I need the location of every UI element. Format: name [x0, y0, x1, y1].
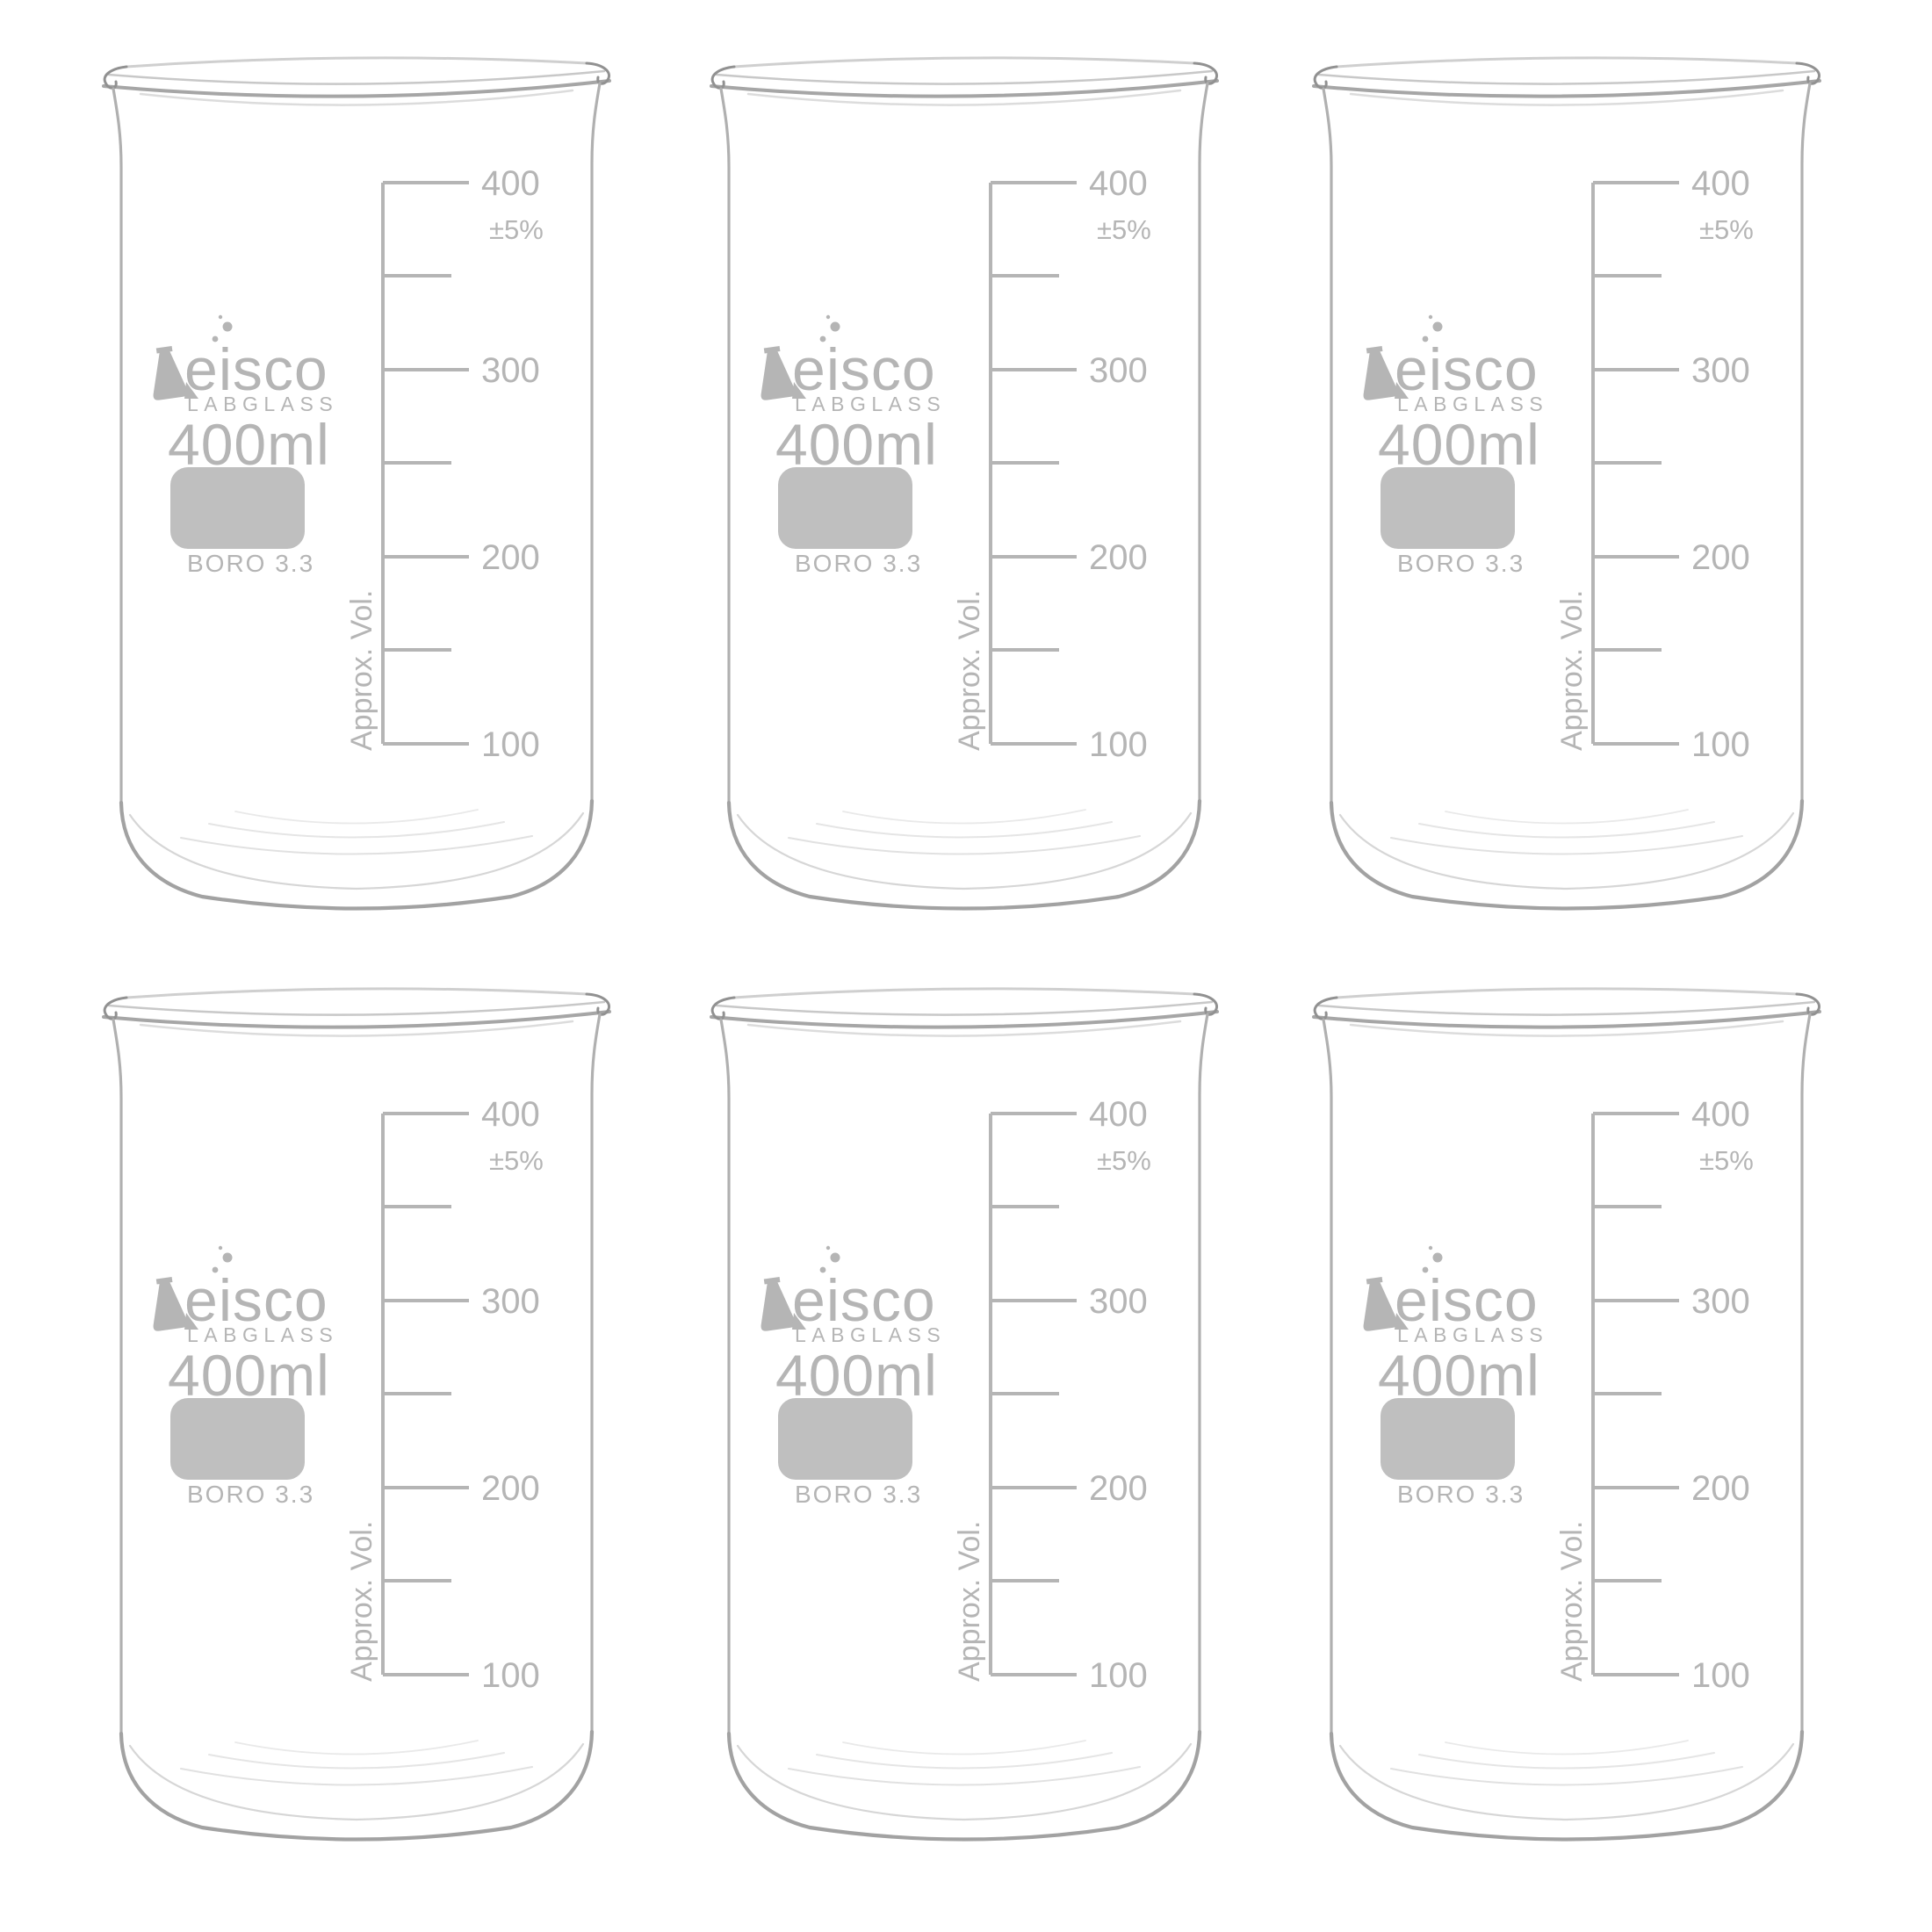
brand-logo: eisco LABGLASS: [147, 315, 338, 415]
printed-markings: eisco LABGLASS 400ml BORO 3.3 400 ±5% 30…: [754, 1095, 1151, 1695]
rim-lip-top: [717, 1002, 1212, 1015]
rim-lip-top: [109, 71, 604, 84]
brand-logo: eisco LABGLASS: [754, 1246, 946, 1346]
scale-value-100: 100: [481, 1656, 540, 1695]
scale-value-200: 200: [481, 538, 540, 577]
wall-left: [113, 1020, 121, 1734]
bubble-icon: [1429, 1246, 1432, 1250]
capacity-label: 400ml: [168, 412, 330, 477]
flask-icon: [147, 345, 188, 401]
base-ring-icon: [235, 810, 478, 824]
marking-area: [778, 1398, 912, 1480]
wall-right: [1802, 1014, 1810, 1732]
scale-value-400: 400: [481, 164, 540, 203]
base-ring-icon: [1419, 822, 1714, 838]
graduation-scale: [1593, 183, 1679, 744]
capacity-label: 400ml: [168, 1343, 330, 1408]
graduation-scale: [383, 183, 469, 744]
material-label: BORO 3.3: [187, 550, 314, 577]
marking-area: [170, 467, 305, 549]
printed-markings: eisco LABGLASS 400ml BORO 3.3 400 ±5% 30…: [1357, 164, 1754, 764]
approx-vol-label: Approx. Vol.: [953, 590, 986, 751]
marking-area: [1381, 1398, 1515, 1480]
scale-value-100: 100: [1691, 725, 1750, 764]
marking-area: [778, 467, 912, 549]
brand-logo: eisco LABGLASS: [1357, 315, 1548, 415]
material-label: BORO 3.3: [1397, 550, 1525, 577]
base-ring-icon: [1445, 810, 1688, 824]
rim-lip-top: [1319, 71, 1814, 84]
base-ring-icon: [209, 822, 504, 838]
wall-left: [721, 89, 729, 803]
wall-right: [1802, 83, 1810, 801]
rim-lip-top: [717, 71, 1212, 84]
rim-curl-left: [105, 998, 126, 1019]
base-ring-icon: [817, 822, 1112, 838]
capacity-label: 400ml: [775, 1343, 938, 1408]
rim-back-edge: [1337, 58, 1797, 67]
base-ring-icon: [789, 836, 1140, 854]
bubble-icon: [831, 322, 840, 332]
bubble-icon: [219, 1246, 222, 1250]
rim-back-edge: [126, 58, 587, 67]
rim-back-edge: [1337, 989, 1797, 998]
marking-area: [170, 1398, 305, 1480]
scale-value-200: 200: [1691, 1469, 1750, 1508]
scale-value-100: 100: [481, 725, 540, 764]
wall-left: [1323, 1020, 1331, 1734]
flask-icon: [1357, 1276, 1398, 1332]
approx-vol-label: Approx. Vol.: [1555, 1521, 1589, 1682]
flask-icon: [1357, 345, 1398, 401]
printed-markings: eisco LABGLASS 400ml BORO 3.3 400 ±5% 30…: [754, 164, 1151, 764]
rim-back-edge: [734, 989, 1194, 998]
brand-logo: eisco LABGLASS: [754, 315, 946, 415]
bubble-icon: [1433, 1253, 1443, 1263]
rim-curl-left: [1315, 998, 1337, 1019]
base-ring-icon: [235, 1741, 478, 1755]
approx-vol-label: Approx. Vol.: [953, 1521, 986, 1682]
bubble-icon: [223, 322, 233, 332]
wall-left: [1323, 89, 1331, 803]
bottom-inner-edge: [738, 813, 1191, 889]
approx-vol-label: Approx. Vol.: [345, 1521, 378, 1682]
base-ring-icon: [181, 1767, 532, 1785]
base-ring-icon: [843, 810, 1085, 824]
scale-value-300: 300: [1089, 1282, 1148, 1321]
material-label: BORO 3.3: [187, 1481, 314, 1508]
bottom-inner-edge: [1340, 813, 1793, 889]
wall-left: [721, 1020, 729, 1734]
flask-icon: [147, 1276, 188, 1332]
scale-value-100: 100: [1691, 1656, 1750, 1695]
product-photo: eisco LABGLASS 400ml BORO 3.3 400 ±5% 30…: [0, 0, 1932, 1932]
bubble-icon: [1429, 315, 1432, 319]
beaker-2: eisco LABGLASS 400ml BORO 3.3 400 ±5% 30…: [708, 51, 1221, 929]
base-ring-icon: [1419, 1753, 1714, 1769]
beaker-1: eisco LABGLASS 400ml BORO 3.3 400 ±5% 30…: [100, 51, 613, 929]
material-label: BORO 3.3: [795, 550, 922, 577]
scale-value-200: 200: [1089, 1469, 1148, 1508]
printed-markings: eisco LABGLASS 400ml BORO 3.3 400 ±5% 30…: [1357, 1095, 1754, 1695]
base-ring-icon: [181, 836, 532, 854]
brand-logo: eisco LABGLASS: [147, 1246, 338, 1346]
base-ring-icon: [1391, 1767, 1742, 1785]
material-label: BORO 3.3: [1397, 1481, 1525, 1508]
graduation-scale: [991, 183, 1077, 744]
scale-value-300: 300: [481, 351, 540, 390]
rim-back-edge: [126, 989, 587, 998]
scale-value-200: 200: [1089, 538, 1148, 577]
scale-value-400: 400: [1691, 1095, 1750, 1134]
scale-value-400: 400: [481, 1095, 540, 1134]
base-ring-icon: [843, 1741, 1085, 1755]
printed-markings: eisco LABGLASS 400ml BORO 3.3 400 ±5% 30…: [147, 1095, 544, 1695]
approx-vol-label: Approx. Vol.: [1555, 590, 1589, 751]
scale-value-400: 400: [1089, 1095, 1148, 1134]
base-ring-icon: [209, 1753, 504, 1769]
tolerance-label: ±5%: [489, 214, 544, 245]
scale-value-300: 300: [1691, 351, 1750, 390]
tolerance-label: ±5%: [1699, 1145, 1754, 1176]
beaker-4: eisco LABGLASS 400ml BORO 3.3 400 ±5% 30…: [100, 982, 613, 1860]
bubble-icon: [831, 1253, 840, 1263]
scale-value-300: 300: [1089, 351, 1148, 390]
bubble-icon: [826, 315, 830, 319]
flask-icon: [754, 1276, 796, 1332]
rim-curl-left: [712, 67, 734, 88]
rim-curl-left: [105, 67, 126, 88]
beaker-3: eisco LABGLASS 400ml BORO 3.3 400 ±5% 30…: [1310, 51, 1823, 929]
bubble-icon: [223, 1253, 233, 1263]
scale-value-300: 300: [481, 1282, 540, 1321]
bottom-inner-edge: [130, 813, 583, 889]
rim-back-edge: [734, 58, 1194, 67]
wall-left: [113, 89, 121, 803]
base-ring-icon: [817, 1753, 1112, 1769]
wall-right: [1200, 1014, 1207, 1732]
scale-value-100: 100: [1089, 725, 1148, 764]
scale-value-100: 100: [1089, 1656, 1148, 1695]
wall-right: [1200, 83, 1207, 801]
bubble-icon: [219, 315, 222, 319]
tolerance-label: ±5%: [489, 1145, 544, 1176]
bubble-icon: [826, 1246, 830, 1250]
scale-value-200: 200: [481, 1469, 540, 1508]
wall-right: [592, 83, 600, 801]
marking-area: [1381, 467, 1515, 549]
rim-curl-left: [1315, 67, 1337, 88]
material-label: BORO 3.3: [795, 1481, 922, 1508]
brand-logo: eisco LABGLASS: [1357, 1246, 1548, 1346]
graduation-scale: [991, 1114, 1077, 1675]
wall-right: [592, 1014, 600, 1732]
flask-icon: [754, 345, 796, 401]
rim-lip-top: [109, 1002, 604, 1015]
beaker-6: eisco LABGLASS 400ml BORO 3.3 400 ±5% 30…: [1310, 982, 1823, 1860]
bottom-inner-edge: [738, 1744, 1191, 1820]
bottom-inner-edge: [130, 1744, 583, 1820]
rim-lip-top: [1319, 1002, 1814, 1015]
bottom-inner-edge: [1340, 1744, 1793, 1820]
capacity-label: 400ml: [1378, 412, 1540, 477]
scale-value-200: 200: [1691, 538, 1750, 577]
graduation-scale: [383, 1114, 469, 1675]
tolerance-label: ±5%: [1699, 214, 1754, 245]
scale-value-400: 400: [1089, 164, 1148, 203]
graduation-scale: [1593, 1114, 1679, 1675]
bubble-icon: [1433, 322, 1443, 332]
base-ring-icon: [1445, 1741, 1688, 1755]
base-ring-icon: [1391, 836, 1742, 854]
scale-value-400: 400: [1691, 164, 1750, 203]
capacity-label: 400ml: [1378, 1343, 1540, 1408]
printed-markings: eisco LABGLASS 400ml BORO 3.3 400 ±5% 30…: [147, 164, 544, 764]
rim-curl-left: [712, 998, 734, 1019]
beaker-5: eisco LABGLASS 400ml BORO 3.3 400 ±5% 30…: [708, 982, 1221, 1860]
tolerance-label: ±5%: [1097, 214, 1151, 245]
capacity-label: 400ml: [775, 412, 938, 477]
scale-value-300: 300: [1691, 1282, 1750, 1321]
tolerance-label: ±5%: [1097, 1145, 1151, 1176]
base-ring-icon: [789, 1767, 1140, 1785]
approx-vol-label: Approx. Vol.: [345, 590, 378, 751]
